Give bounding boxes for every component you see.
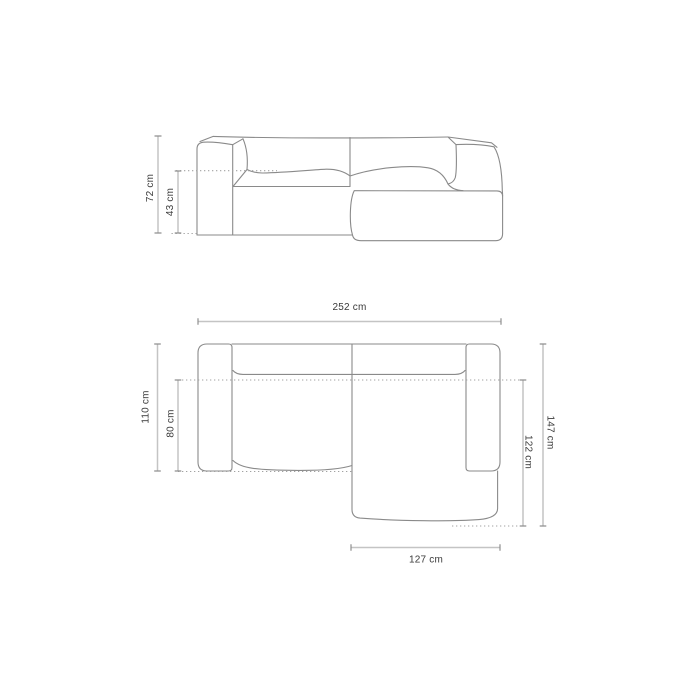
plan-right-arm [466, 344, 500, 471]
front-view-dotted-lines [172, 171, 278, 234]
plan-total-depth-label: 147 cm [545, 416, 556, 450]
plan-seat-front-edge [233, 461, 352, 471]
top-view-dotted-lines [178, 380, 523, 526]
plan-chaise-depth-label: 122 cm [523, 435, 534, 469]
plan-chaise-outline [352, 466, 498, 521]
top-view-dimension-lines [158, 322, 544, 548]
front-view-labels: 72 cm 43 cm [145, 174, 176, 216]
sofa-dimension-diagram: 72 cm 43 cm [0, 0, 700, 700]
top-view-sofa-outline [198, 344, 500, 521]
plan-sofa-depth-label: 110 cm [140, 390, 151, 423]
front-view-sofa-outline [197, 136, 503, 240]
plan-left-arm [198, 344, 232, 471]
front-chaise-block [350, 191, 502, 241]
top-view-labels: 252 cm 110 cm 80 cm 147 cm 122 cm 127 cm [140, 302, 555, 566]
top-view: 252 cm 110 cm 80 cm 147 cm 122 cm 127 cm [140, 302, 555, 566]
front-backrest-top-edge [213, 136, 448, 138]
plan-total-width-label: 252 cm [333, 302, 367, 313]
front-left-arm [197, 142, 233, 235]
diagram-canvas: 72 cm 43 cm [0, 0, 700, 700]
plan-backrest-inner-edge [233, 371, 465, 375]
plan-seat-depth-label: 80 cm [165, 409, 176, 437]
top-view-dimension-ticks [154, 318, 546, 551]
front-view: 72 cm 43 cm [145, 136, 503, 241]
front-right-arm-inner-edge [448, 145, 456, 184]
front-backrest-left-curve [243, 139, 247, 170]
front-right-arm-front-top-edge [456, 144, 494, 146]
plan-chaise-width-label: 127 cm [409, 555, 443, 566]
front-right-outer-edge [494, 147, 503, 196]
front-seat-cushion-right [350, 167, 463, 191]
front-seat-left-seam [233, 170, 247, 187]
front-total-height-label: 72 cm [145, 174, 156, 202]
front-seat-cushion-left [247, 169, 350, 176]
front-view-dimension-lines [158, 136, 178, 233]
front-seat-height-label: 43 cm [165, 188, 176, 216]
